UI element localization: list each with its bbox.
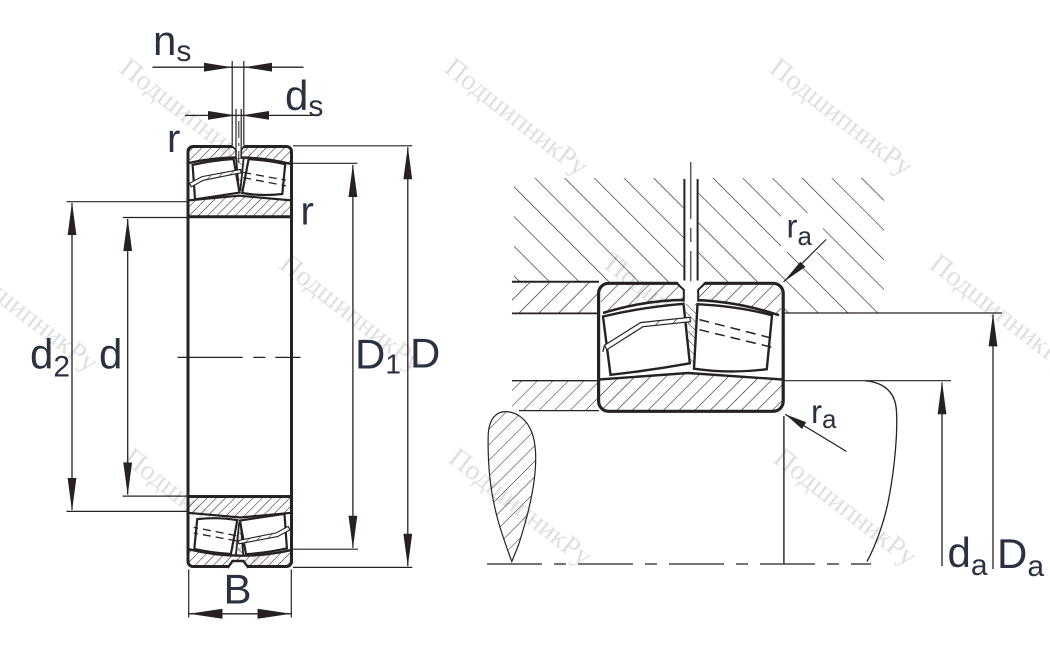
- svg-text:D: D: [410, 330, 440, 377]
- svg-text:d: d: [99, 330, 122, 377]
- svg-text:r: r: [167, 117, 180, 161]
- svg-text:r: r: [301, 190, 314, 234]
- svg-text:B: B: [224, 566, 252, 613]
